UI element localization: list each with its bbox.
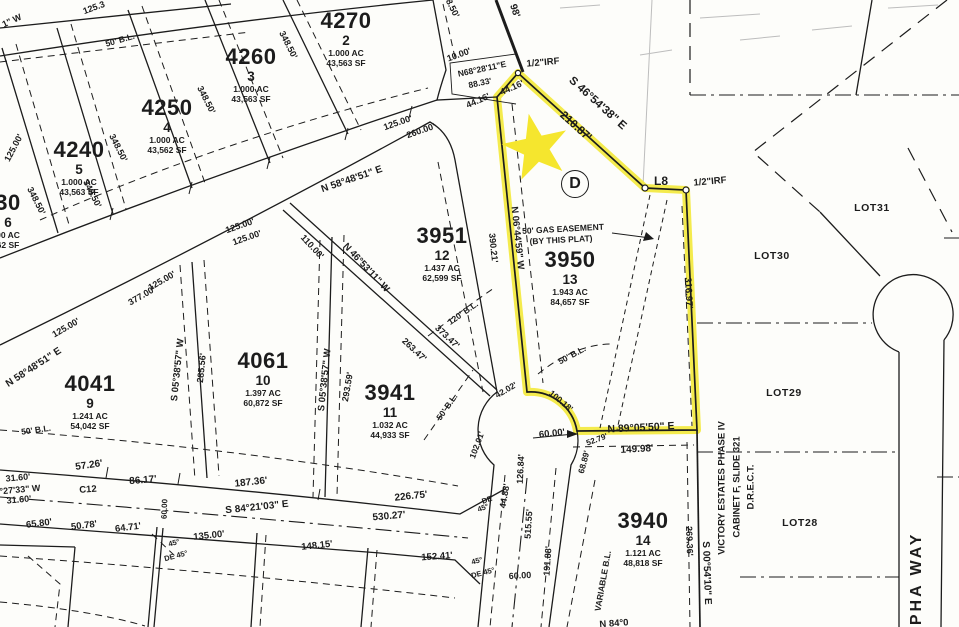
dimension-label: 57.26' (75, 459, 104, 473)
dimension-label: 68.89' (577, 450, 591, 475)
dimension-label: 269.36' (684, 526, 694, 556)
dimension-label: VICTORY ESTATES PHASE IV (717, 421, 727, 555)
dimension-label: 50' B.L. (435, 392, 459, 421)
dimension-label: CABINET F, SLIDE 321 (732, 436, 742, 537)
dimension-label: 1/2"IRF (693, 176, 727, 188)
dimension-label: 50' B.L. (21, 424, 52, 437)
dimension-label: S 05°38'57" W (170, 338, 186, 402)
dimension-label: 1" W (1, 13, 23, 30)
dimension-label: N 89°05'50" E (607, 421, 675, 435)
dimension-label: 293.59' (341, 372, 355, 403)
dimension-label: VARIABLE B.L. (593, 550, 612, 612)
dimension-labels-layer: 125.31" W125.00'50' B.L.348.50'348.50'34… (0, 0, 959, 627)
dimension-label: C12 (79, 485, 97, 496)
dimension-label: 102.01' (468, 430, 486, 459)
dimension-label: S 00°54'10" E (700, 541, 712, 605)
dimension-label: 260.00' (406, 122, 437, 140)
dimension-label: 126.84' (516, 454, 527, 484)
dimension-label: 390.21' (487, 233, 499, 263)
dimension-label: 152.41' (421, 551, 453, 563)
dimension-label: 50' B.L. (104, 32, 135, 48)
dimension-label: N 58°48'51" E (320, 165, 384, 195)
dimension-label: 191.88' (542, 546, 553, 576)
dimension-label: 45° (168, 538, 181, 548)
dimension-label: S 05°38'57" W (317, 348, 333, 412)
dimension-label: 120' B.L. (446, 300, 479, 327)
dimension-label: 377.00' (127, 285, 157, 308)
plat-map: 427021.000 AC43,563 SF426031.000 AC43,56… (0, 0, 959, 627)
dimension-label: 31.60' (5, 472, 30, 483)
dimension-label: DE 45° (471, 566, 496, 579)
point-d-marker: D (561, 170, 589, 198)
dimension-label: DE 45° (164, 549, 189, 562)
dimension-label: ALPHA WAY (909, 532, 925, 627)
dimension-label: 373.47' (433, 324, 461, 351)
dimension-label: 98' (507, 3, 521, 19)
dimension-label: 31.60' (6, 494, 31, 505)
dimension-label: 64.71' (114, 522, 141, 535)
dimension-label: 348.50' (277, 30, 298, 61)
dimension-label: 10.00' (446, 47, 472, 64)
dimension-label: 65.80' (25, 518, 52, 531)
dimension-label: 530.27' (372, 511, 406, 524)
dimension-label: 1/2"IRF (526, 57, 560, 69)
dimension-label: N 46°53'11" W (341, 242, 391, 294)
dimension-label: 515.55' (523, 509, 534, 539)
dimension-label: N68°28'11"E (457, 60, 507, 79)
dimension-label: S 84°21'03" E (225, 500, 289, 517)
dimension-label: 316.97' (682, 277, 693, 309)
dimension-label: 125.00' (51, 317, 81, 340)
dimension-label: 42.02' (494, 380, 518, 399)
dimension-label: N 06°44'59" W (509, 206, 525, 270)
dimension-label: L8 (654, 175, 668, 187)
dimension-label: 348.50' (195, 85, 216, 116)
dimension-label: 285.56' (196, 353, 208, 383)
dimension-label: D.R.E.C.T. (746, 465, 756, 510)
dimension-label: 263.47' (400, 337, 428, 364)
dimension-label: 187.36' (234, 476, 268, 489)
dimension-label: 210.87' (557, 110, 593, 144)
dimension-label: 44.16' (499, 79, 525, 97)
dimension-label: 44.88' (498, 483, 511, 509)
dimension-label: 110.00' (299, 233, 325, 260)
dimension-label: 348.50' (107, 133, 128, 164)
dimension-label: 45° (476, 503, 489, 514)
dimension-label: 125.3 (82, 0, 106, 16)
dimension-label: 60.00 (161, 499, 170, 519)
dimension-label: 125.00' (3, 133, 25, 163)
dimension-label: 60.00' (539, 428, 566, 440)
dimension-label: 50.78' (70, 520, 97, 533)
dimension-label: 348.50' (81, 179, 102, 210)
dimension-label: N 84°0 (599, 618, 629, 627)
dimension-label: 60.00 (509, 571, 532, 581)
dimension-label: (BY THIS PLAT) (529, 234, 592, 246)
dimension-label: 348.50' (439, 0, 460, 19)
dimension-label: 348.50' (25, 186, 46, 217)
dimension-label: 45° (471, 556, 484, 566)
dimension-label: 52.79' (585, 432, 608, 447)
dimension-label: 149.98' (620, 444, 653, 456)
dimension-label: 86.17' (129, 475, 157, 487)
dimension-label: 50' B.L. (557, 344, 587, 366)
dimension-label: 44.16' (465, 92, 491, 110)
dimension-label: 100.18' (548, 389, 575, 414)
dimension-label: 135.00' (193, 530, 225, 543)
dimension-label: N 58°48'51" E (4, 346, 63, 389)
dimension-label: 226.75' (394, 490, 428, 503)
dimension-label: 88.33' (468, 76, 493, 89)
dimension-label: 148.15' (301, 540, 333, 553)
